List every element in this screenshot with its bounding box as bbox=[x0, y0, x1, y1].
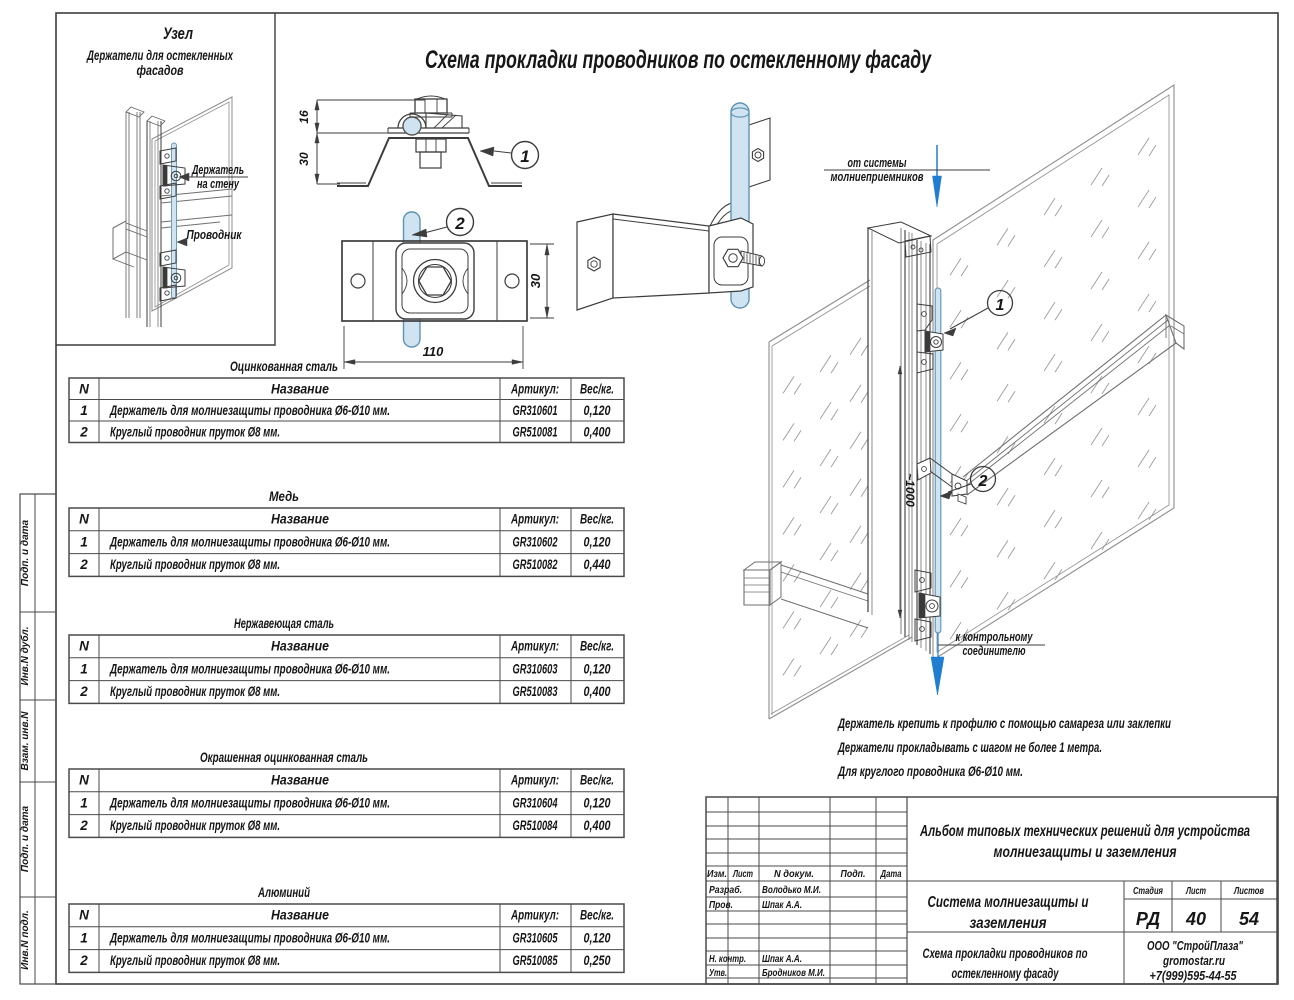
svg-text:GR310605: GR310605 bbox=[513, 930, 558, 945]
svg-text:2: 2 bbox=[79, 953, 88, 968]
svg-text:Вес/кг.: Вес/кг. bbox=[580, 512, 614, 527]
svg-text:РД: РД bbox=[1136, 909, 1160, 929]
svg-text:2: 2 bbox=[978, 473, 988, 490]
svg-text:+7(999)595-44-55: +7(999)595-44-55 bbox=[1150, 968, 1238, 983]
svg-text:Для круглого проводника Ø6-Ø10: Для круглого проводника Ø6-Ø10 мм. bbox=[837, 763, 1023, 779]
svg-text:Артикул:: Артикул: bbox=[510, 908, 559, 923]
svg-text:Оцинкованная сталь: Оцинкованная сталь bbox=[230, 358, 338, 374]
svg-text:заземления: заземления bbox=[970, 915, 1047, 932]
svg-text:0,120: 0,120 bbox=[584, 795, 611, 810]
svg-text:от системы: от системы bbox=[848, 156, 907, 170]
svg-text:Инв.N подл.: Инв.N подл. bbox=[20, 910, 31, 969]
svg-text:GR510081: GR510081 bbox=[513, 425, 558, 440]
svg-text:0,120: 0,120 bbox=[584, 534, 611, 549]
svg-text:Подп. и дата: Подп. и дата bbox=[20, 519, 31, 586]
svg-text:Название: Название bbox=[271, 512, 329, 527]
svg-text:GR510085: GR510085 bbox=[513, 953, 558, 968]
svg-text:фасадов: фасадов bbox=[137, 63, 184, 78]
svg-text:Пров.: Пров. bbox=[709, 899, 733, 911]
svg-text:GR510082: GR510082 bbox=[513, 557, 558, 572]
svg-text:Держатель для молниезащиты про: Держатель для молниезащиты проводника Ø6… bbox=[109, 930, 390, 945]
svg-text:54: 54 bbox=[1239, 909, 1259, 929]
svg-text:Бродников М.И.: Бродников М.И. bbox=[762, 967, 825, 979]
svg-text:0,400: 0,400 bbox=[584, 684, 611, 699]
svg-text:Круглый проводник пруток Ø8 мм: Круглый проводник пруток Ø8 мм. bbox=[110, 953, 280, 968]
svg-text:Проводник: Проводник bbox=[187, 228, 243, 242]
svg-text:Стадия: Стадия bbox=[1133, 885, 1163, 897]
svg-text:Вес/кг.: Вес/кг. bbox=[580, 773, 614, 788]
svg-text:1: 1 bbox=[80, 403, 88, 418]
svg-text:16: 16 bbox=[297, 110, 311, 124]
svg-text:Медь: Медь bbox=[269, 488, 299, 504]
svg-text:N: N bbox=[79, 639, 89, 654]
svg-text:Держатели прокладывать с шагом: Держатели прокладывать с шагом не более … bbox=[837, 739, 1102, 755]
svg-text:Лист: Лист bbox=[1185, 885, 1206, 897]
svg-text:Система молниезащиты и: Система молниезащиты и bbox=[928, 894, 1089, 911]
svg-text:2: 2 bbox=[79, 557, 88, 572]
svg-text:Алюминий: Алюминий bbox=[257, 884, 310, 900]
svg-text:Артикул:: Артикул: bbox=[510, 773, 559, 788]
svg-text:1: 1 bbox=[996, 297, 1005, 314]
svg-text:на стену: на стену bbox=[197, 177, 240, 191]
svg-text:Взам. инв.N: Взам. инв.N bbox=[20, 711, 31, 771]
svg-text:Артикул:: Артикул: bbox=[510, 639, 559, 654]
svg-text:Название: Название bbox=[271, 639, 329, 654]
svg-text:Схема прокладки проводников по: Схема прокладки проводников по bbox=[923, 945, 1088, 961]
svg-text:40: 40 bbox=[1185, 909, 1206, 929]
svg-text:Н. контр.: Н. контр. bbox=[709, 953, 746, 965]
svg-text:1: 1 bbox=[80, 534, 88, 549]
svg-text:2: 2 bbox=[79, 425, 88, 440]
svg-text:GR310601: GR310601 bbox=[513, 403, 558, 418]
svg-text:Изм.: Изм. bbox=[707, 868, 727, 880]
svg-text:GR310602: GR310602 bbox=[513, 534, 558, 549]
svg-text:Лист: Лист bbox=[732, 868, 753, 880]
svg-text:Схема прокладки проводников по: Схема прокладки проводников по остекленн… bbox=[425, 46, 932, 74]
svg-text:N: N bbox=[79, 512, 89, 527]
svg-text:1: 1 bbox=[80, 795, 88, 810]
svg-text:2: 2 bbox=[454, 214, 465, 233]
svg-text:Держатели для остекленных: Держатели для остекленных bbox=[86, 48, 233, 63]
svg-text:0,250: 0,250 bbox=[584, 953, 611, 968]
svg-text:N: N bbox=[79, 773, 89, 788]
svg-text:ООО "СтройПлаза": ООО "СтройПлаза" bbox=[1147, 938, 1244, 953]
svg-text:30: 30 bbox=[297, 152, 311, 166]
svg-text:Шпак А.А.: Шпак А.А. bbox=[762, 899, 802, 911]
svg-text:30: 30 bbox=[528, 273, 543, 288]
svg-text:Вес/кг.: Вес/кг. bbox=[580, 382, 614, 397]
svg-text:N докум.: N докум. bbox=[774, 868, 814, 880]
svg-text:Альбом типовых технических реш: Альбом типовых технических решений для у… bbox=[919, 823, 1250, 840]
svg-text:0,440: 0,440 bbox=[584, 557, 611, 572]
svg-text:Вес/кг.: Вес/кг. bbox=[580, 639, 614, 654]
svg-text:Утв.: Утв. bbox=[709, 967, 727, 979]
svg-text:Артикул:: Артикул: bbox=[510, 382, 559, 397]
svg-text:Дата: Дата bbox=[880, 868, 902, 880]
svg-text:Держатель крепить к профилю с: Держатель крепить к профилю с помощью са… bbox=[837, 715, 1171, 731]
svg-text:Держатель для молниезащиты про: Держатель для молниезащиты проводника Ø6… bbox=[109, 795, 390, 810]
svg-text:2: 2 bbox=[79, 684, 88, 699]
svg-text:N: N bbox=[79, 382, 89, 397]
svg-text:0,400: 0,400 bbox=[584, 425, 611, 440]
svg-text:110: 110 bbox=[423, 344, 444, 359]
svg-text:Держатель для молниезащиты про: Держатель для молниезащиты проводника Ø6… bbox=[109, 661, 390, 676]
svg-text:Узел: Узел bbox=[163, 24, 193, 43]
svg-text:Название: Название bbox=[271, 908, 329, 923]
svg-text:молниезащиты и заземления: молниезащиты и заземления bbox=[994, 844, 1177, 861]
svg-text:Подп.: Подп. bbox=[841, 868, 866, 880]
svg-text:0,120: 0,120 bbox=[584, 661, 611, 676]
svg-text:Круглый проводник пруток Ø8 мм: Круглый проводник пруток Ø8 мм. bbox=[110, 684, 280, 699]
svg-text:остекленному фасаду: остекленному фасаду bbox=[952, 965, 1060, 981]
svg-text:0,120: 0,120 bbox=[584, 403, 611, 418]
svg-text:Круглый проводник пруток Ø8 мм: Круглый проводник пруток Ø8 мм. bbox=[110, 425, 280, 440]
svg-text:Держатель: Держатель bbox=[191, 163, 244, 177]
svg-text:~1000: ~1000 bbox=[903, 473, 917, 507]
svg-text:молниеприемников: молниеприемников bbox=[831, 170, 924, 184]
svg-text:0,400: 0,400 bbox=[584, 818, 611, 833]
svg-text:Володько М.И.: Володько М.И. bbox=[762, 884, 821, 896]
svg-text:1: 1 bbox=[80, 930, 88, 945]
svg-text:Шпак А.А.: Шпак А.А. bbox=[762, 953, 802, 965]
svg-text:Подп. и дата: Подп. и дата bbox=[20, 805, 31, 872]
svg-text:к контрольному: к контрольному bbox=[956, 630, 1034, 644]
svg-text:Инв.N дубл.: Инв.N дубл. bbox=[19, 627, 31, 686]
svg-text:1: 1 bbox=[80, 661, 88, 676]
svg-text:N: N bbox=[79, 908, 89, 923]
svg-text:Держатель для молниезащиты про: Держатель для молниезащиты проводника Ø6… bbox=[109, 403, 390, 418]
svg-text:GR510084: GR510084 bbox=[513, 818, 558, 833]
svg-text:Артикул:: Артикул: bbox=[510, 512, 559, 527]
svg-text:GR510083: GR510083 bbox=[513, 684, 558, 699]
svg-text:GR310604: GR310604 bbox=[513, 795, 558, 810]
svg-text:Круглый проводник пруток Ø8 мм: Круглый проводник пруток Ø8 мм. bbox=[110, 818, 280, 833]
svg-text:Разраб.: Разраб. bbox=[709, 884, 742, 896]
svg-text:соединителю: соединителю bbox=[963, 644, 1026, 658]
svg-text:Окрашенная оцинкованная сталь: Окрашенная оцинкованная сталь bbox=[200, 749, 368, 765]
svg-text:Название: Название bbox=[271, 382, 329, 397]
svg-text:GR310603: GR310603 bbox=[513, 661, 558, 676]
svg-text:Круглый проводник пруток Ø8 мм: Круглый проводник пруток Ø8 мм. bbox=[110, 557, 280, 572]
svg-text:Название: Название bbox=[271, 773, 329, 788]
svg-text:2: 2 bbox=[79, 818, 88, 833]
svg-text:0,120: 0,120 bbox=[584, 930, 611, 945]
svg-text:Держатель для молниезащиты про: Держатель для молниезащиты проводника Ø6… bbox=[109, 534, 390, 549]
svg-text:Вес/кг.: Вес/кг. bbox=[580, 908, 614, 923]
svg-text:Нержавеющая сталь: Нержавеющая сталь bbox=[234, 615, 334, 631]
svg-text:Листов: Листов bbox=[1233, 885, 1264, 897]
svg-text:1: 1 bbox=[520, 147, 529, 166]
svg-text:gromostar.ru: gromostar.ru bbox=[1162, 953, 1225, 968]
